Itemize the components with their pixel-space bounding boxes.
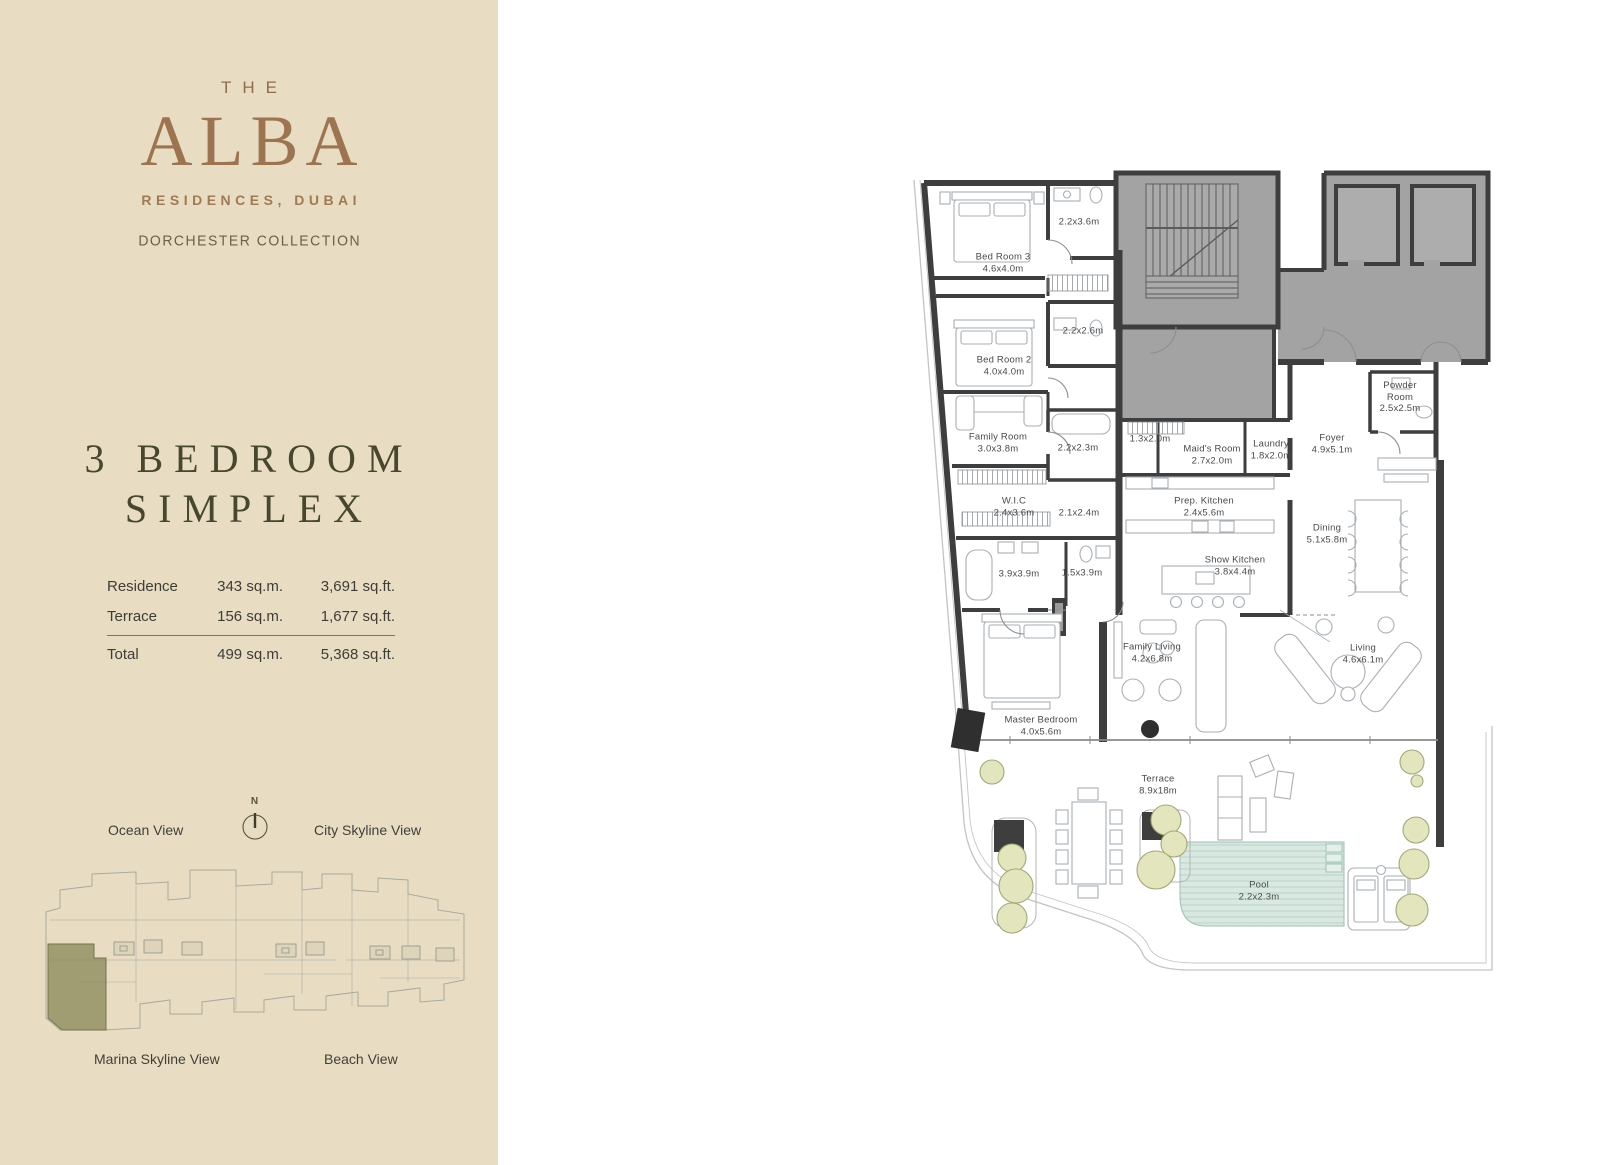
room-label: Master Bedroom4.0x5.6m xyxy=(1004,715,1077,738)
area-row-terrace: Terrace 156 sq.m. 1,677 sq.ft. xyxy=(107,602,395,632)
room-label: Prep. Kitchen2.4x5.6m xyxy=(1174,496,1234,519)
room-label: 2.2x2.3m xyxy=(1058,442,1099,454)
view-label-beach: Beach View xyxy=(324,1051,398,1067)
room-label: W.I.C2.4x3.6m xyxy=(994,496,1035,519)
floor-plan-panel: Bed Room 34.6x4.0m2.2x3.6mBed Room 24.0x… xyxy=(498,0,1600,1165)
room-label: 3.9x3.9m xyxy=(999,568,1040,580)
area-sqft: 5,368 sq.ft. xyxy=(283,646,395,663)
compass-north-label: N xyxy=(233,796,277,807)
brand-logo: THE ALBA RESIDENCES, DUBAI DORCHESTER CO… xyxy=(0,78,498,248)
unit-title-line1: 3 BEDROOM xyxy=(0,434,498,484)
unit-title: 3 BEDROOM SIMPLEX xyxy=(0,434,498,534)
key-plan-highlighted-unit xyxy=(48,944,106,1030)
view-label-ocean: Ocean View xyxy=(108,822,183,838)
area-sqm: 499 sq.m. xyxy=(197,646,283,663)
room-label: Terrace8.9x18m xyxy=(1139,774,1177,797)
brochure-page: THE ALBA RESIDENCES, DUBAI DORCHESTER CO… xyxy=(0,0,1600,1165)
room-label: Family Living4.2x6.8m xyxy=(1123,642,1181,665)
view-label-marina-skyline: Marina Skyline View xyxy=(94,1051,220,1067)
room-label: 2.1x2.4m xyxy=(1059,507,1100,519)
brand-subtitle: RESIDENCES, DUBAI xyxy=(0,192,498,208)
room-label: 2.2x3.6m xyxy=(1059,216,1100,228)
area-sqm: 156 sq.m. xyxy=(197,608,283,625)
sidebar: THE ALBA RESIDENCES, DUBAI DORCHESTER CO… xyxy=(0,0,498,1165)
key-plan-outline xyxy=(46,870,464,1030)
area-table: Residence 343 sq.m. 3,691 sq.ft. Terrace… xyxy=(107,572,395,670)
room-label: 1.3x2.0m xyxy=(1130,433,1171,445)
area-row-residence: Residence 343 sq.m. 3,691 sq.ft. xyxy=(107,572,395,602)
stairs xyxy=(1146,184,1238,298)
room-label: 2.2x2.6m xyxy=(1063,325,1104,337)
room-label: Maid's Room2.7x2.0m xyxy=(1183,444,1240,467)
room-label: Bed Room 24.0x4.0m xyxy=(977,355,1032,378)
unit-title-line2: SIMPLEX xyxy=(0,484,498,534)
view-label-city-skyline: City Skyline View xyxy=(314,822,421,838)
brand-collection: DORCHESTER COLLECTION xyxy=(0,231,498,248)
compass-icon xyxy=(233,807,277,841)
room-label: Dining5.1x5.8m xyxy=(1307,523,1348,546)
brand-name: ALBA xyxy=(0,102,498,180)
area-label: Residence xyxy=(107,578,197,595)
area-label: Total xyxy=(107,646,197,663)
area-row-total: Total 499 sq.m. 5,368 sq.ft. xyxy=(107,635,395,670)
room-label: Living4.6x6.1m xyxy=(1343,643,1384,666)
room-label: Laundry1.8x2.0m xyxy=(1251,439,1292,462)
room-label: 1.5x3.9m xyxy=(1062,567,1103,579)
room-label: Powder Room2.5x2.5m xyxy=(1372,380,1428,415)
key-plan-cores xyxy=(114,940,454,961)
area-sqm: 343 sq.m. xyxy=(197,578,283,595)
room-label: Show Kitchen3.8x4.4m xyxy=(1205,555,1266,578)
room-label: Foyer4.9x5.1m xyxy=(1312,433,1353,456)
brand-the: THE xyxy=(0,78,498,98)
area-sqft: 3,691 sq.ft. xyxy=(283,578,395,595)
room-label: Family Room3.0x3.8m xyxy=(969,432,1027,455)
area-sqft: 1,677 sq.ft. xyxy=(283,608,395,625)
floor-plan: Bed Room 34.6x4.0m2.2x3.6mBed Room 24.0x… xyxy=(900,170,1500,1015)
compass: N xyxy=(233,796,277,846)
room-label: Pool2.2x2.3m xyxy=(1239,880,1280,903)
area-label: Terrace xyxy=(107,608,197,625)
building-key-plan xyxy=(40,862,470,1040)
floor-plan-drawing xyxy=(900,170,1500,1015)
room-label: Bed Room 34.6x4.0m xyxy=(976,252,1031,275)
